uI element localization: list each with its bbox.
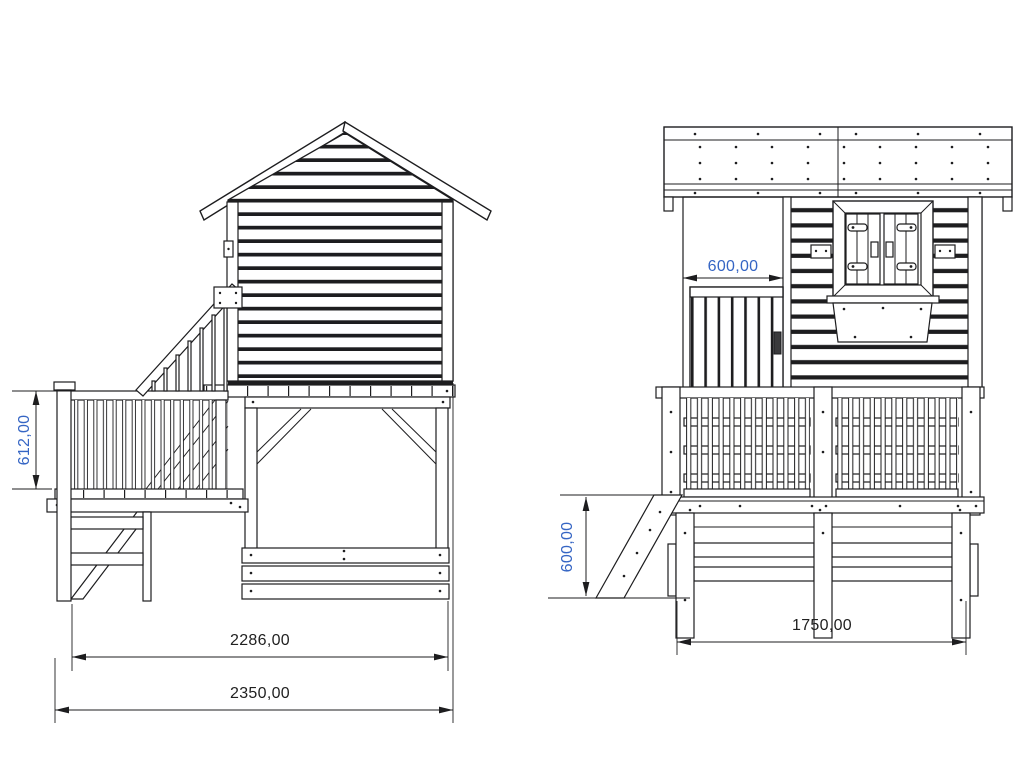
dim-label-1750: 1750,00: [792, 617, 852, 634]
railing-panel: [836, 398, 958, 497]
corner-trim-right: [442, 202, 453, 381]
shutter-latch-left: [811, 245, 831, 258]
post-left: [245, 408, 257, 549]
front-corner-trim: [968, 197, 982, 388]
shutter-handle: [871, 242, 878, 257]
dimension-platform-height: 600,00: [559, 497, 586, 596]
sandbox: [242, 548, 449, 599]
deck-post-cap: [54, 382, 75, 390]
dim-label-2286: 2286,00: [230, 632, 290, 649]
railing-panel: [684, 398, 810, 497]
ladder-rung: [70, 553, 143, 565]
front-railing: [656, 387, 984, 515]
shutter-latch-right: [935, 245, 955, 258]
dimension-deck-length: 2286,00: [72, 601, 448, 671]
front-roof: [664, 127, 1012, 211]
door-handle: [774, 332, 781, 354]
dim-label-2350: 2350,00: [230, 685, 290, 702]
door-jamb: [783, 197, 791, 388]
base-board: [694, 543, 814, 557]
side-posts: [245, 408, 448, 549]
dim-label-600-door: 600,00: [708, 258, 759, 275]
base-board: [694, 567, 814, 581]
front-view: 600,00 600,00 1750,00: [548, 127, 1012, 655]
ladder-rung: [70, 517, 143, 529]
deck-balusters: [74, 400, 228, 490]
base-board: [832, 543, 952, 557]
railing-post: [962, 387, 980, 515]
door-top-rail: [690, 287, 783, 297]
base-board: [832, 567, 952, 581]
side-platform: [204, 381, 455, 408]
deck-post: [57, 390, 71, 601]
stair-landing: [214, 287, 242, 308]
support-beam: [245, 397, 450, 408]
dim-label-612: 612,00: [16, 415, 33, 466]
ladder-stile: [143, 512, 151, 601]
shutter-handle: [886, 242, 893, 257]
side-view: 612,00 2286,00 2350,00: [12, 122, 491, 723]
front-platform-rim: [656, 497, 984, 513]
door: [683, 197, 783, 390]
dim-label-600-height: 600,00: [559, 522, 576, 573]
post-right: [436, 408, 448, 549]
deck-top-rail: [70, 391, 228, 400]
dimension-door-width: 600,00: [683, 256, 783, 290]
window-sill: [827, 296, 939, 303]
technical-drawing-canvas: 612,00 2286,00 2350,00: [0, 0, 1024, 768]
side-deck: [47, 284, 248, 601]
deck-rim: [47, 499, 248, 512]
door-planks: [691, 297, 782, 388]
